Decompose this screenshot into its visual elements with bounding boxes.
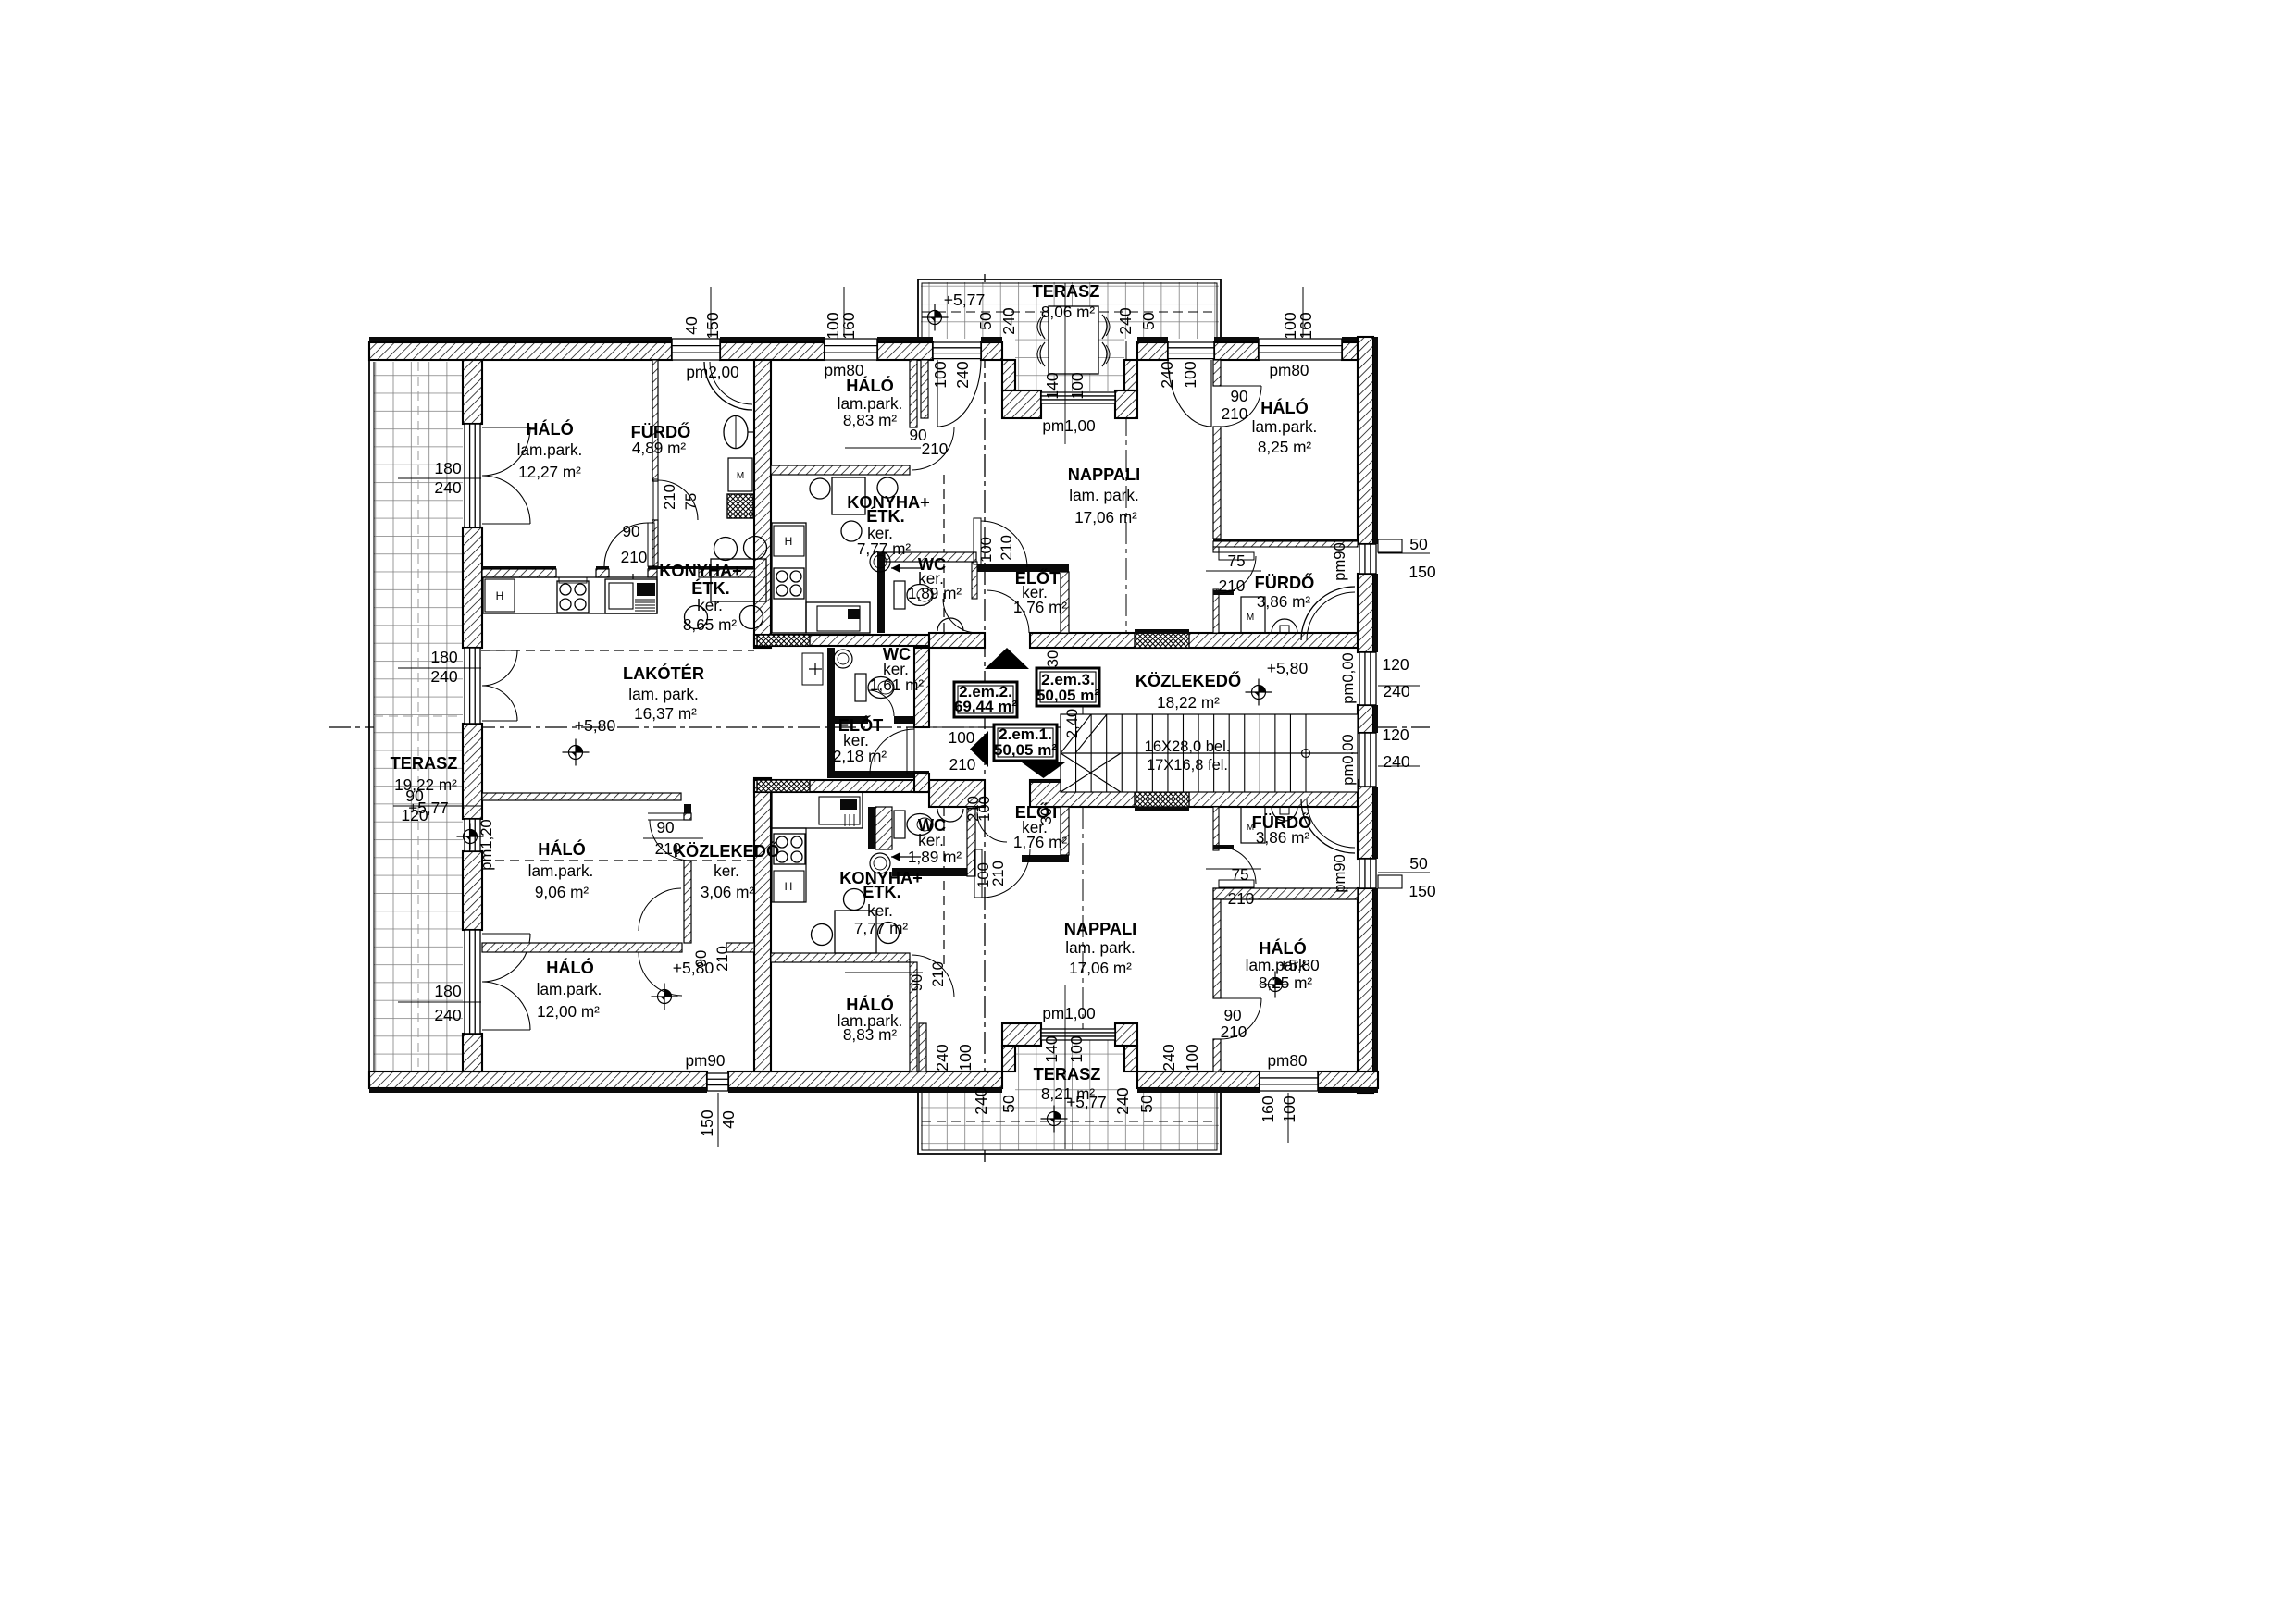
svg-text:H: H: [496, 589, 504, 602]
svg-text:240: 240: [972, 1087, 990, 1115]
svg-text:50: 50: [1409, 854, 1428, 873]
svg-text:210: 210: [655, 839, 682, 858]
svg-text:1,89 m²: 1,89 m²: [908, 848, 962, 866]
svg-text:pm80: pm80: [1270, 361, 1309, 379]
svg-text:240: 240: [1113, 1087, 1132, 1115]
svg-text:100: 100: [1068, 372, 1086, 400]
svg-text:HÁLÓ: HÁLÓ: [526, 419, 574, 439]
svg-text:pm90: pm90: [1331, 542, 1348, 581]
svg-text:210: 210: [1221, 1022, 1247, 1041]
svg-text:7,77 m²: 7,77 m²: [854, 919, 909, 937]
svg-text:ker.: ker.: [918, 831, 944, 849]
svg-text:150: 150: [698, 1109, 716, 1137]
svg-text:19,22 m²: 19,22 m²: [394, 775, 457, 794]
svg-text:90: 90: [405, 787, 424, 805]
svg-text:180: 180: [430, 648, 458, 666]
svg-text:120: 120: [1382, 655, 1409, 674]
svg-text:pm1,00: pm1,00: [1042, 1004, 1095, 1022]
svg-text:+5,80: +5,80: [1279, 956, 1320, 974]
svg-text:210: 210: [661, 484, 678, 510]
svg-text:240: 240: [434, 1006, 462, 1024]
svg-text:2,18 m²: 2,18 m²: [833, 747, 887, 765]
svg-text:210: 210: [998, 535, 1015, 561]
svg-text:140: 140: [1042, 1035, 1061, 1063]
svg-text:lam.park.: lam.park.: [517, 440, 583, 459]
svg-text:69,44 m²: 69,44 m²: [954, 698, 1017, 715]
svg-text:+5,77: +5,77: [944, 291, 986, 309]
svg-text:100: 100: [1067, 1035, 1086, 1063]
svg-text:240: 240: [430, 667, 458, 686]
svg-text:KÖZLEKEDŐ: KÖZLEKEDŐ: [674, 841, 779, 861]
svg-text:100: 100: [931, 361, 949, 389]
svg-text:180: 180: [434, 982, 462, 1000]
svg-text:1,61 m²: 1,61 m²: [870, 675, 925, 694]
svg-text:3,86 m²: 3,86 m²: [1257, 592, 1311, 611]
svg-text:120: 120: [1382, 725, 1409, 744]
svg-text:lam. park.: lam. park.: [628, 685, 698, 703]
svg-text:8,25 m²: 8,25 m²: [1259, 973, 1313, 992]
svg-text:16X28,0 bel.: 16X28,0 bel.: [1145, 738, 1231, 755]
svg-text:90: 90: [1223, 1006, 1241, 1024]
svg-text:150: 150: [703, 312, 722, 340]
svg-text:HÁLÓ: HÁLÓ: [1260, 398, 1309, 417]
svg-text:17X16,8 fel.: 17X16,8 fel.: [1147, 757, 1228, 774]
svg-text:HÁLÓ: HÁLÓ: [538, 839, 586, 859]
svg-text:90: 90: [692, 950, 710, 967]
svg-text:50,05 m²: 50,05 m²: [994, 741, 1057, 759]
svg-text:lam.park.: lam.park.: [1252, 417, 1318, 436]
svg-text:30: 30: [1037, 808, 1055, 824]
svg-text:100: 100: [1181, 361, 1199, 389]
svg-text:pm0,00: pm0,00: [1339, 734, 1357, 785]
svg-text:4,89 m²: 4,89 m²: [632, 439, 687, 457]
svg-text:90: 90: [622, 522, 639, 540]
svg-text:240: 240: [1383, 752, 1410, 771]
svg-text:ker.: ker.: [867, 901, 893, 920]
svg-text:lam. park.: lam. park.: [1065, 938, 1135, 957]
svg-text:8,65 m²: 8,65 m²: [683, 615, 738, 634]
svg-text:17,06 m²: 17,06 m²: [1069, 959, 1132, 977]
svg-text:140: 140: [1043, 372, 1061, 400]
svg-text:lam.park.: lam.park.: [528, 861, 594, 880]
svg-text:LAKÓTÉR: LAKÓTÉR: [623, 663, 704, 683]
svg-text:50: 50: [1139, 312, 1158, 330]
svg-text:KÖZLEKEDŐ: KÖZLEKEDŐ: [1136, 671, 1241, 690]
svg-text:ker.: ker.: [714, 861, 739, 880]
svg-text:100: 100: [1280, 1096, 1298, 1123]
svg-text:40: 40: [719, 1110, 738, 1129]
svg-text:240: 240: [1383, 682, 1410, 700]
svg-text:2,40: 2,40: [1063, 709, 1081, 738]
svg-text:240: 240: [953, 361, 972, 389]
svg-text:lam.park.: lam.park.: [838, 394, 903, 413]
svg-text:FÜRDŐ: FÜRDŐ: [1255, 573, 1315, 592]
svg-text:M: M: [1247, 613, 1254, 623]
svg-text:160: 160: [839, 312, 858, 340]
svg-text:KONYHA+: KONYHA+: [659, 562, 741, 580]
svg-text:40: 40: [682, 316, 701, 335]
svg-text:50: 50: [999, 1095, 1018, 1113]
svg-text:240: 240: [1158, 361, 1176, 389]
svg-text:210: 210: [922, 440, 949, 458]
svg-text:240: 240: [999, 307, 1018, 335]
svg-text:1,76 m²: 1,76 m²: [1013, 833, 1068, 851]
svg-text:HÁLÓ: HÁLÓ: [1259, 938, 1307, 958]
svg-text:ker.: ker.: [697, 596, 723, 614]
svg-text:TERASZ: TERASZ: [391, 754, 458, 773]
svg-text:210: 210: [1222, 404, 1248, 423]
svg-text:+5,80: +5,80: [575, 716, 616, 735]
svg-text:210: 210: [714, 946, 731, 972]
svg-text:75: 75: [682, 493, 700, 510]
svg-text:210: 210: [929, 961, 947, 987]
svg-text:1,89 m²: 1,89 m²: [908, 584, 962, 602]
svg-text:pm80: pm80: [825, 361, 864, 379]
svg-text:210: 210: [949, 755, 976, 774]
svg-text:50: 50: [1409, 535, 1428, 553]
svg-text:pm1,20: pm1,20: [478, 819, 495, 870]
svg-text:H: H: [785, 880, 793, 893]
svg-text:ÉTK.: ÉTK.: [691, 578, 729, 598]
svg-text:210: 210: [1228, 889, 1255, 908]
svg-text:H: H: [785, 535, 793, 548]
svg-text:240: 240: [933, 1044, 951, 1072]
svg-text:1,76 m²: 1,76 m²: [1013, 598, 1068, 616]
svg-text:ÉTK.: ÉTK.: [866, 506, 904, 526]
svg-text:NAPPALI: NAPPALI: [1064, 920, 1136, 938]
svg-text:210: 210: [621, 548, 648, 566]
svg-text:50: 50: [976, 312, 995, 330]
svg-text:160: 160: [1297, 312, 1315, 340]
svg-text:8,83 m²: 8,83 m²: [843, 411, 898, 429]
svg-text:3,06 m²: 3,06 m²: [701, 883, 755, 901]
svg-text:pm90: pm90: [1331, 854, 1348, 893]
svg-text:240: 240: [1160, 1044, 1178, 1072]
svg-text:90: 90: [1230, 387, 1247, 405]
svg-text:7,77 m²: 7,77 m²: [857, 539, 912, 558]
svg-text:8,06 m²: 8,06 m²: [1041, 303, 1096, 321]
svg-text:HÁLÓ: HÁLÓ: [546, 958, 594, 977]
svg-text:100: 100: [975, 796, 993, 822]
svg-text:12,00 m²: 12,00 m²: [537, 1002, 600, 1021]
svg-text:+5,77: +5,77: [1066, 1093, 1107, 1111]
svg-text:ÉTK.: ÉTK.: [863, 882, 900, 901]
svg-text:pm90: pm90: [686, 1051, 726, 1070]
svg-text:3,86 m²: 3,86 m²: [1256, 828, 1310, 847]
svg-text:18,22 m²: 18,22 m²: [1157, 693, 1220, 712]
svg-text:240: 240: [1116, 307, 1135, 335]
svg-text:pm2,00: pm2,00: [686, 363, 738, 381]
svg-text:120: 120: [401, 806, 428, 824]
svg-text:16,37 m²: 16,37 m²: [634, 704, 697, 723]
svg-text:160: 160: [1259, 1096, 1277, 1123]
svg-text:210: 210: [989, 861, 1007, 886]
svg-text:8,83 m²: 8,83 m²: [843, 1025, 898, 1044]
svg-text:100: 100: [977, 537, 995, 563]
svg-text:TERASZ: TERASZ: [1033, 282, 1100, 301]
svg-text:90: 90: [908, 974, 925, 991]
svg-text:M: M: [737, 471, 744, 481]
svg-text:+5,80: +5,80: [1267, 659, 1309, 677]
svg-text:lam.park.: lam.park.: [537, 980, 602, 998]
svg-text:90: 90: [656, 818, 674, 836]
svg-text:TERASZ: TERASZ: [1034, 1065, 1101, 1084]
svg-text:75: 75: [1231, 865, 1248, 884]
svg-text:100: 100: [949, 728, 975, 747]
svg-text:8,25 m²: 8,25 m²: [1258, 438, 1312, 456]
svg-text:150: 150: [1409, 882, 1436, 900]
svg-text:30: 30: [1044, 650, 1061, 667]
svg-text:12,27 m²: 12,27 m²: [518, 463, 581, 481]
svg-text:150: 150: [1409, 563, 1436, 581]
svg-text:100: 100: [956, 1044, 974, 1072]
svg-text:pm1,00: pm1,00: [1042, 416, 1095, 435]
svg-text:NAPPALI: NAPPALI: [1068, 465, 1140, 484]
svg-text:210: 210: [1219, 576, 1246, 595]
svg-text:lam. park.: lam. park.: [1069, 486, 1138, 504]
svg-text:50: 50: [1137, 1095, 1156, 1113]
svg-text:180: 180: [434, 459, 462, 477]
svg-text:100: 100: [1183, 1044, 1201, 1072]
svg-text:50,05 m²: 50,05 m²: [1036, 687, 1099, 704]
svg-text:240: 240: [434, 478, 462, 497]
svg-text:9,06 m²: 9,06 m²: [535, 883, 590, 901]
svg-text:17,06 m²: 17,06 m²: [1074, 508, 1137, 527]
svg-text:75: 75: [1227, 551, 1245, 570]
svg-text:pm0,00: pm0,00: [1339, 652, 1357, 703]
svg-text:pm80: pm80: [1268, 1051, 1308, 1070]
